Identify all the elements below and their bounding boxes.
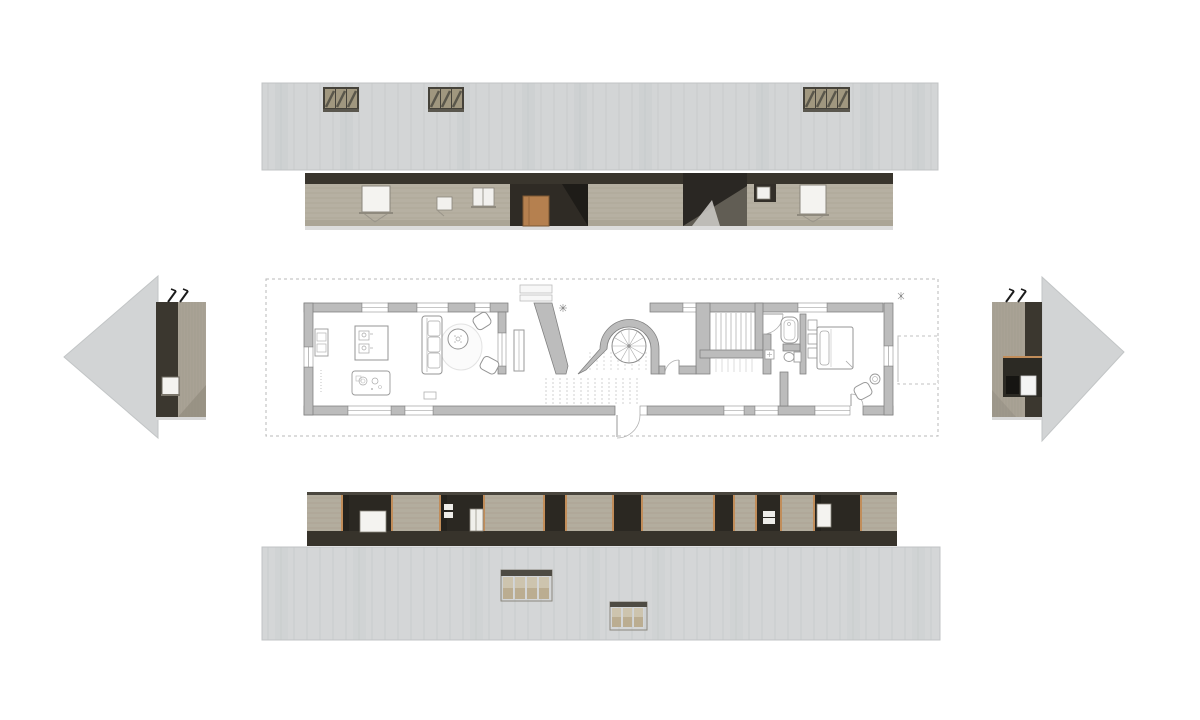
drawing-canvas: [0, 0, 1200, 720]
west-gable-elevation: [64, 276, 206, 438]
north-elevation: [262, 83, 938, 230]
floor-plan: [266, 279, 938, 438]
architectural-sheet: [0, 0, 1200, 720]
south-elevation: [262, 492, 940, 640]
east-gable-elevation: [992, 277, 1124, 441]
